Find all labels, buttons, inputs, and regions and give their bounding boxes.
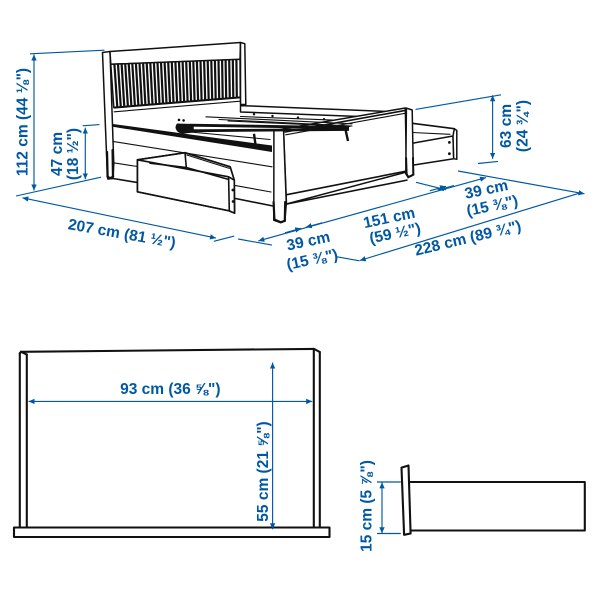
svg-text:47 cm: 47 cm [49, 132, 66, 176]
svg-text:(18 ½"): (18 ½") [65, 128, 82, 180]
svg-text:228 cm (89 ¾"): 228 cm (89 ¾") [413, 218, 523, 260]
svg-text:207 cm (81 ½"): 207 cm (81 ½") [67, 216, 177, 252]
svg-text:55 cm (21 ⅝"): 55 cm (21 ⅝") [255, 421, 272, 521]
svg-text:(24 ¾"): (24 ¾") [515, 100, 532, 152]
svg-text:93 cm (36 ⅝"): 93 cm (36 ⅝") [120, 381, 220, 398]
svg-text:63 cm: 63 cm [498, 104, 515, 148]
svg-text:112 cm (44 ⅛"): 112 cm (44 ⅛") [15, 68, 32, 176]
svg-text:15 cm (5 ⅞"): 15 cm (5 ⅞") [359, 460, 376, 552]
